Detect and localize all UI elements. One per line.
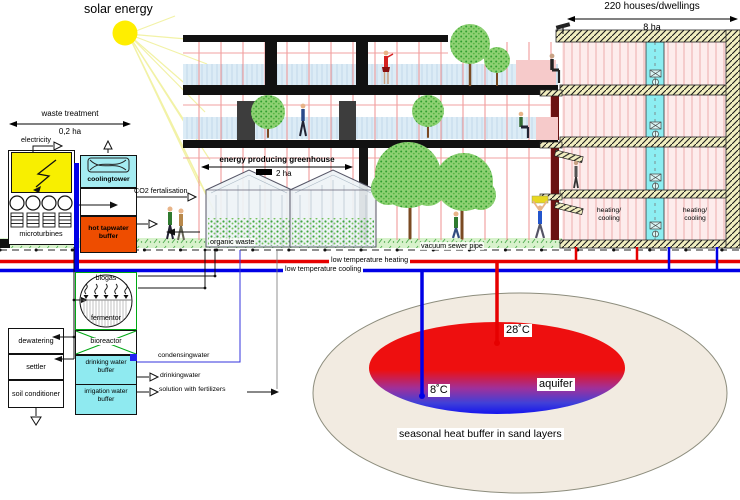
condensingwater-line <box>130 250 240 362</box>
person-floor2-man <box>300 104 306 136</box>
waste-treatment-title: waste treatment <box>10 109 130 118</box>
people <box>167 51 578 240</box>
person-sitting-floor2 <box>519 112 528 138</box>
person-harvesting <box>532 196 548 238</box>
energy-system-diagram: solar energy 220 houses/dwellings 8 ha w… <box>0 0 740 500</box>
houses-title: 220 houses/dwellings <box>572 1 732 13</box>
person-ground-man <box>453 212 459 239</box>
floor-slab <box>560 190 740 198</box>
heating-pipe-label: low temperature heating <box>329 256 410 264</box>
person-sitting-balcony <box>550 54 559 83</box>
roof-slab <box>556 30 740 42</box>
drinkingwater-label: drinkingwater <box>160 372 200 380</box>
soil-conditioner-box <box>8 380 64 408</box>
sun-rays <box>128 16 225 234</box>
roof-slab <box>183 35 448 42</box>
organic-waste-label: organic waste <box>209 238 255 246</box>
houses-building <box>540 22 740 248</box>
solution-label: solution with fertilizers <box>159 386 225 394</box>
irrigation-water-buffer-box <box>75 384 137 415</box>
co2-label: CO2 fertalisation <box>134 187 188 195</box>
greenhouse-title: energy producing greenhouse <box>202 155 352 164</box>
drinking-water-buffer-box <box>75 355 137 385</box>
heating-cooling-left-label: heating/ cooling <box>572 207 646 223</box>
settler-box <box>8 354 64 380</box>
aquifer-cold-temp: 8˚C <box>428 384 450 397</box>
dewatering-box <box>8 328 64 354</box>
tree-icon <box>251 24 510 238</box>
bioreactor-box <box>75 330 137 355</box>
dimension-arrows <box>10 19 737 175</box>
electricity-generator-box <box>11 152 72 193</box>
aquifer-ellipse <box>313 293 727 493</box>
ventilation-unit-icon <box>650 70 661 237</box>
electricity-label: electricity <box>21 136 51 144</box>
coolingtower-box <box>80 155 137 188</box>
person-roof-woman <box>382 51 393 84</box>
service-shaft <box>646 42 664 248</box>
waste-area: 0,2 ha <box>40 127 100 136</box>
buffer-outlets <box>137 250 279 396</box>
central-building <box>183 35 559 240</box>
pipe-risers <box>419 247 717 399</box>
aquifer-label: aquifer <box>537 378 575 391</box>
hot-tapwater-buffer-box <box>80 216 137 253</box>
floor-slab <box>183 140 558 148</box>
person-pair <box>167 207 184 241</box>
floor-slab <box>183 85 558 95</box>
houses-area: 8 ha <box>622 22 682 32</box>
base-slab <box>560 240 740 248</box>
fermentor-box <box>75 272 137 330</box>
greenhouse-area: 2 ha <box>276 169 292 178</box>
condensingwater-label: condensingwater <box>158 352 209 360</box>
vacuum-sewer-label: vacuum sewer pipe <box>420 242 484 250</box>
side-wall <box>726 30 740 248</box>
aquifer-caption: seasonal heat buffer in sand layers <box>397 428 564 440</box>
aquifer-hot-temp: 28˚C <box>504 324 532 337</box>
floor-slab <box>560 137 740 147</box>
sun-icon <box>113 21 138 46</box>
solar-panel-icon <box>556 22 571 34</box>
solar-energy-title: solar energy <box>84 2 153 16</box>
person-houses-floor <box>574 161 578 188</box>
floor-slab <box>560 85 740 95</box>
heat-exchanger-box <box>80 188 137 216</box>
greenhouse-icon <box>206 170 376 247</box>
cooling-pipe-label: low temperature cooling <box>283 265 363 273</box>
heating-cooling-right-label: heating/ cooling <box>658 207 732 223</box>
